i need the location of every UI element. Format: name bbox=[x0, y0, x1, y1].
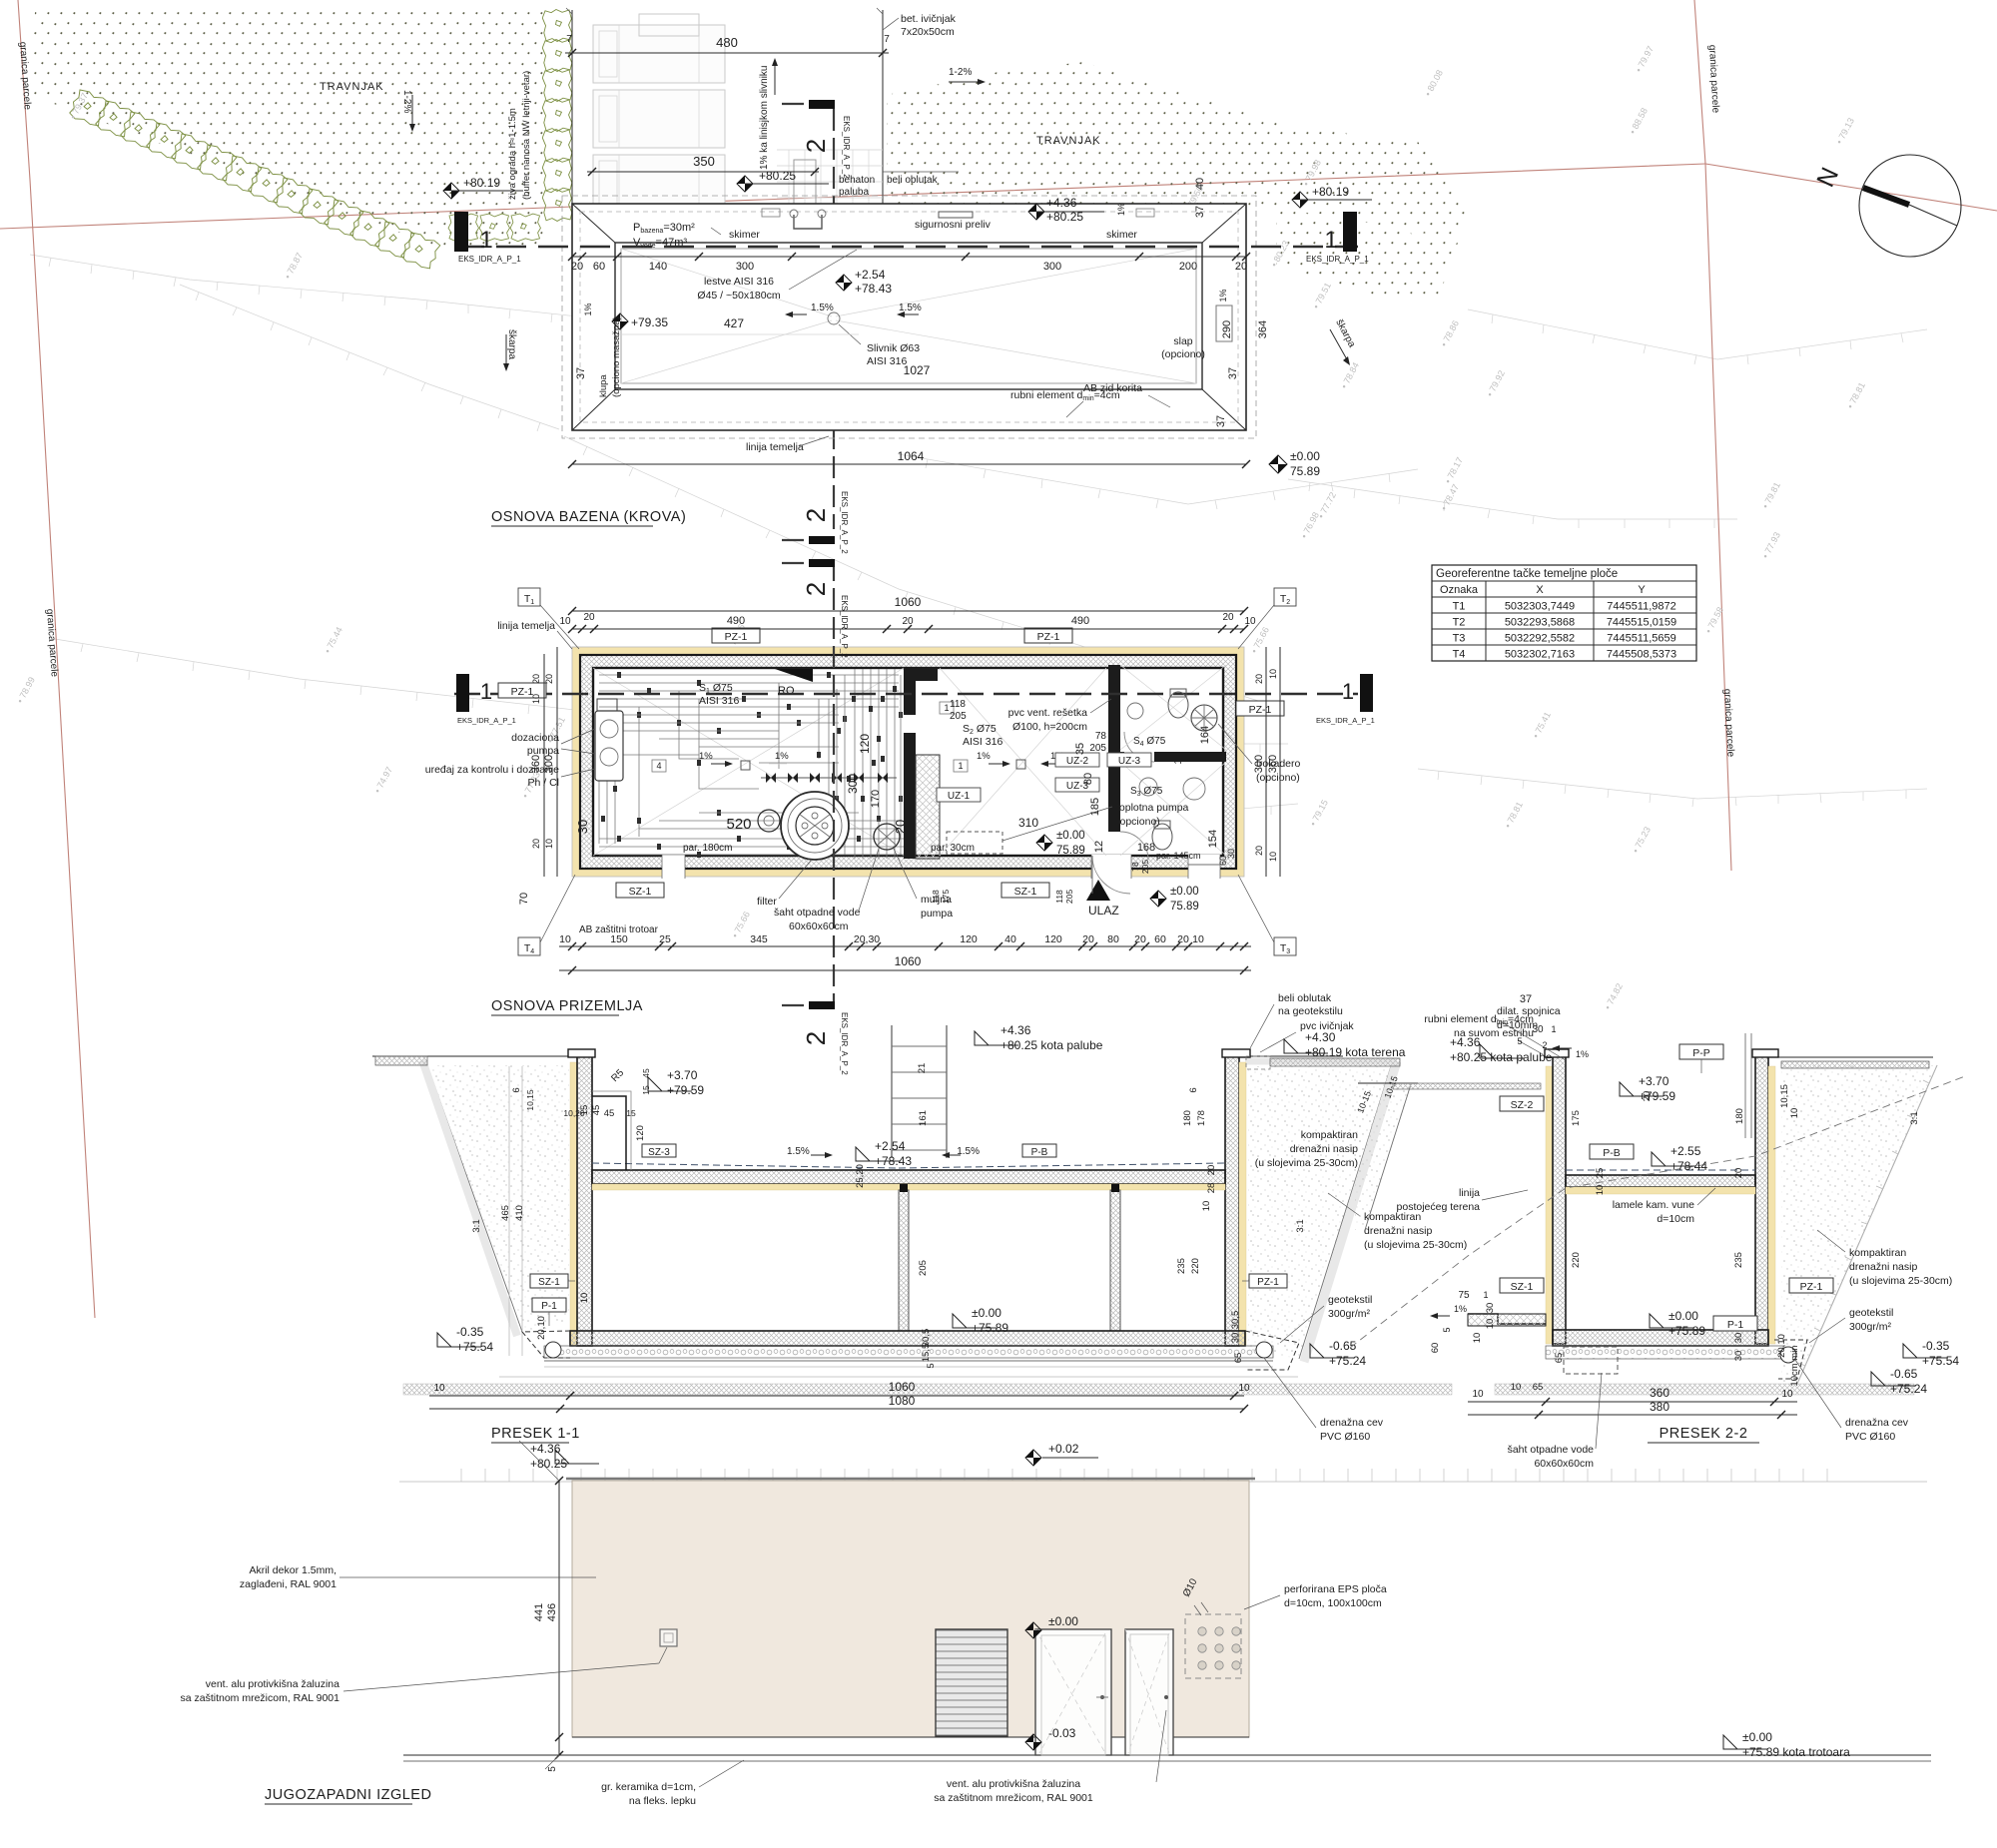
svg-text:345: 345 bbox=[750, 933, 768, 945]
svg-text:30: 30 bbox=[575, 820, 590, 834]
svg-text:S2 Ø75: S2 Ø75 bbox=[963, 723, 997, 736]
svg-text:1: 1 bbox=[480, 679, 492, 704]
svg-text:37: 37 bbox=[1215, 415, 1227, 427]
svg-text:+80.25: +80.25 bbox=[1046, 210, 1083, 224]
svg-text:30: 30 bbox=[1532, 1024, 1544, 1035]
svg-text:70: 70 bbox=[518, 893, 530, 905]
svg-text:75: 75 bbox=[1458, 1290, 1470, 1301]
svg-text:65: 65 bbox=[1533, 1382, 1544, 1393]
svg-text:154: 154 bbox=[1207, 830, 1219, 848]
svg-text:sa zaštitnom mrežicom, RAL 900: sa zaštitnom mrežicom, RAL 9001 bbox=[180, 1692, 339, 1704]
svg-text:1060: 1060 bbox=[895, 595, 922, 609]
svg-text:20: 20 bbox=[1254, 674, 1264, 684]
svg-text:360: 360 bbox=[1650, 1386, 1669, 1400]
svg-text:PRESEK 2-2: PRESEK 2-2 bbox=[1660, 1426, 1748, 1442]
svg-text:+75.89 kota trotoara: +75.89 kota trotoara bbox=[1742, 1745, 1850, 1759]
svg-text:PRESEK 1-1: PRESEK 1-1 bbox=[491, 1426, 580, 1442]
svg-text:PVC Ø160: PVC Ø160 bbox=[1320, 1431, 1370, 1443]
svg-text:1080: 1080 bbox=[889, 1394, 916, 1408]
svg-text:175: 175 bbox=[1571, 1110, 1582, 1126]
svg-text:(u slojevima 25-30cm): (u slojevima 25-30cm) bbox=[1364, 1239, 1467, 1251]
svg-text:• 75.66: • 75.66 bbox=[1249, 625, 1271, 655]
svg-text:1%: 1% bbox=[775, 751, 789, 762]
svg-text:20: 20 bbox=[583, 612, 595, 623]
svg-text:+75.89: +75.89 bbox=[972, 1321, 1008, 1335]
svg-text:300: 300 bbox=[1043, 261, 1061, 273]
svg-text:5032292,5582: 5032292,5582 bbox=[1505, 633, 1575, 645]
svg-text:10: 10 bbox=[1485, 1319, 1496, 1330]
svg-text:441: 441 bbox=[533, 1603, 545, 1621]
svg-text:360: 360 bbox=[530, 755, 542, 773]
svg-text:• 75.23: • 75.23 bbox=[1631, 825, 1653, 855]
svg-text:45: 45 bbox=[604, 1108, 615, 1119]
svg-text:TRAVNJAK: TRAVNJAK bbox=[1036, 135, 1101, 147]
svg-text:5: 5 bbox=[926, 1363, 937, 1368]
svg-text:PZ-1: PZ-1 bbox=[1037, 631, 1060, 643]
svg-text:7445508,5373: 7445508,5373 bbox=[1607, 649, 1676, 661]
svg-text:beli oblutak: beli oblutak bbox=[887, 175, 939, 186]
svg-text:SZ-1: SZ-1 bbox=[629, 886, 652, 898]
svg-text:10,15: 10,15 bbox=[1779, 1084, 1790, 1108]
svg-text:d=10cm, 100x100cm: d=10cm, 100x100cm bbox=[1284, 1597, 1382, 1609]
svg-text:21: 21 bbox=[917, 1063, 928, 1074]
svg-text:AB zid korita: AB zid korita bbox=[1083, 382, 1142, 394]
svg-text:180: 180 bbox=[1734, 1108, 1745, 1124]
svg-text:75.89: 75.89 bbox=[1170, 901, 1199, 913]
svg-text:• 80.08: • 80.08 bbox=[1423, 68, 1445, 98]
svg-text:7: 7 bbox=[884, 34, 890, 45]
svg-text:-0.03: -0.03 bbox=[1048, 1726, 1076, 1740]
svg-text:+80.25 kota palube: +80.25 kota palube bbox=[1000, 1038, 1103, 1052]
svg-text:2: 2 bbox=[801, 139, 831, 153]
svg-text:-0.35: -0.35 bbox=[1922, 1339, 1950, 1353]
svg-text:10: 10 bbox=[1268, 669, 1278, 679]
svg-text:pumpa: pumpa bbox=[921, 908, 953, 920]
svg-text:Slivnik Ø63: Slivnik Ø63 bbox=[867, 342, 920, 354]
svg-text:P-B: P-B bbox=[1603, 1147, 1621, 1159]
svg-text:drenažni nasip: drenažni nasip bbox=[1290, 1143, 1358, 1155]
svg-text:+80.19 kota terena: +80.19 kota terena bbox=[1305, 1045, 1406, 1059]
svg-text:OSNOVA BAZENA (KROVA): OSNOVA BAZENA (KROVA) bbox=[491, 509, 686, 525]
svg-text:par. 180cm: par. 180cm bbox=[683, 843, 732, 854]
svg-text:360: 360 bbox=[1267, 755, 1279, 773]
svg-text:• 78.17: • 78.17 bbox=[1443, 455, 1465, 485]
svg-text:X: X bbox=[1536, 584, 1544, 596]
svg-text:10: 10 bbox=[1268, 852, 1278, 862]
svg-text:20: 20 bbox=[531, 839, 541, 849]
svg-text:10: 10 bbox=[1472, 1333, 1483, 1344]
svg-text:5: 5 bbox=[1442, 1327, 1452, 1332]
svg-text:JUGOZAPADNI IZGLED: JUGOZAPADNI IZGLED bbox=[265, 1787, 431, 1803]
svg-text:65: 65 bbox=[1554, 1353, 1565, 1364]
svg-text:350: 350 bbox=[693, 154, 715, 169]
svg-text:PZ-1: PZ-1 bbox=[725, 631, 748, 643]
svg-text:480: 480 bbox=[716, 35, 738, 50]
svg-text:• 77.93: • 77.93 bbox=[1760, 530, 1782, 560]
svg-text:bet. ivičnjak: bet. ivičnjak bbox=[901, 13, 957, 25]
svg-text:AISI 316: AISI 316 bbox=[699, 695, 739, 707]
svg-text:60: 60 bbox=[1430, 1343, 1441, 1354]
svg-text:235: 235 bbox=[1733, 1252, 1744, 1268]
svg-text:25,20: 25,20 bbox=[855, 1164, 866, 1188]
svg-text:EKS_IDR_A_P_1: EKS_IDR_A_P_1 bbox=[1316, 716, 1375, 725]
svg-text:+80.19: +80.19 bbox=[1312, 185, 1349, 199]
svg-text:drenažni nasip: drenažni nasip bbox=[1364, 1225, 1432, 1237]
svg-text:75.89: 75.89 bbox=[1290, 464, 1320, 478]
svg-text:P-1: P-1 bbox=[1727, 1319, 1744, 1331]
svg-text:P-B: P-B bbox=[1031, 1147, 1048, 1158]
svg-text:granica parcele: granica parcele bbox=[44, 608, 60, 677]
svg-text:10: 10 bbox=[1244, 616, 1256, 627]
svg-text:5: 5 bbox=[1517, 1036, 1522, 1046]
svg-text:EKS_IDR_A_P_1: EKS_IDR_A_P_1 bbox=[1306, 255, 1369, 264]
svg-text:OSNOVA PRIZEMLJA: OSNOVA PRIZEMLJA bbox=[491, 998, 643, 1014]
svg-text:linija temelja: linija temelja bbox=[497, 620, 555, 632]
svg-text:60x60x60cm: 60x60x60cm bbox=[789, 921, 849, 932]
svg-text:• 74.97: • 74.97 bbox=[372, 765, 394, 795]
svg-text:30: 30 bbox=[1733, 1333, 1744, 1344]
svg-text:1%: 1% bbox=[977, 751, 991, 762]
svg-text:3:1: 3:1 bbox=[1295, 1219, 1306, 1232]
svg-text:T2: T2 bbox=[1453, 617, 1466, 629]
svg-text:1%: 1% bbox=[1576, 1049, 1589, 1059]
svg-text:37: 37 bbox=[1227, 367, 1239, 379]
svg-text:1%: 1% bbox=[1116, 203, 1126, 216]
svg-text:+75.54: +75.54 bbox=[456, 1340, 493, 1354]
svg-text:dilat. spojnica: dilat. spojnica bbox=[1497, 1005, 1561, 1017]
svg-text:-0.65: -0.65 bbox=[1890, 1367, 1918, 1381]
svg-text:P-1: P-1 bbox=[541, 1301, 557, 1312]
svg-text:• 79.97: • 79.97 bbox=[1634, 44, 1656, 74]
svg-text:1: 1 bbox=[1551, 1024, 1556, 1034]
svg-text:P-P: P-P bbox=[1692, 1047, 1710, 1059]
svg-text:granica parcele: granica parcele bbox=[1706, 45, 1721, 114]
svg-text:+2.55: +2.55 bbox=[1670, 1144, 1701, 1158]
svg-text:kompaktiran: kompaktiran bbox=[1301, 1129, 1358, 1141]
svg-text:20: 20 bbox=[893, 820, 908, 834]
svg-text:UZ-1: UZ-1 bbox=[948, 791, 971, 802]
svg-text:436: 436 bbox=[546, 1603, 558, 1621]
svg-text:škarpa: škarpa bbox=[1333, 317, 1357, 349]
svg-text:220: 220 bbox=[1190, 1258, 1201, 1274]
svg-text:na geotekstilu: na geotekstilu bbox=[1278, 1005, 1343, 1017]
svg-text:drenažna cev: drenažna cev bbox=[1845, 1417, 1909, 1429]
svg-text:+78.43: +78.43 bbox=[855, 282, 892, 296]
svg-text:28: 28 bbox=[1206, 1183, 1217, 1194]
svg-text:1-2%: 1-2% bbox=[401, 90, 412, 113]
svg-text:+79.35: +79.35 bbox=[631, 315, 668, 329]
svg-text:na fleks. lepku: na fleks. lepku bbox=[629, 1795, 696, 1807]
svg-text:• 79.81: • 79.81 bbox=[1760, 480, 1782, 510]
svg-text:EKS_IDR_A_P_2: EKS_IDR_A_P_2 bbox=[840, 595, 849, 658]
svg-text:(opciono): (opciono) bbox=[1116, 816, 1160, 828]
svg-text:465: 465 bbox=[500, 1205, 511, 1221]
svg-text:SZ-1: SZ-1 bbox=[538, 1277, 560, 1288]
svg-text:ULAZ: ULAZ bbox=[1088, 904, 1119, 918]
svg-text:EKS_IDR_A_P_2: EKS_IDR_A_P_2 bbox=[840, 1012, 849, 1075]
svg-text:10: 10 bbox=[1595, 1185, 1606, 1196]
svg-text:60: 60 bbox=[1154, 933, 1166, 945]
svg-text:+75.89: +75.89 bbox=[1668, 1324, 1705, 1338]
svg-text:3:1: 3:1 bbox=[471, 1219, 482, 1232]
svg-text:Oznaka: Oznaka bbox=[1440, 584, 1479, 596]
svg-text:šaht otpadne vode: šaht otpadne vode bbox=[1508, 1444, 1595, 1456]
svg-text:S3 Ø75: S3 Ø75 bbox=[1130, 786, 1163, 798]
svg-text:164: 164 bbox=[1199, 726, 1211, 744]
svg-text:1-2%: 1-2% bbox=[949, 67, 972, 78]
svg-text:380: 380 bbox=[1650, 1400, 1669, 1414]
svg-text:290: 290 bbox=[1221, 320, 1233, 338]
svg-text:5032302,7163: 5032302,7163 bbox=[1505, 649, 1575, 661]
svg-text:Y: Y bbox=[1638, 584, 1646, 596]
svg-text:10,15: 10,15 bbox=[525, 1089, 535, 1111]
svg-text:• 79.15: • 79.15 bbox=[1308, 798, 1330, 828]
svg-text:37: 37 bbox=[575, 367, 587, 379]
svg-text:EKS_IDR_A_P_1: EKS_IDR_A_P_1 bbox=[457, 716, 516, 725]
svg-text:+4.36: +4.36 bbox=[1046, 196, 1077, 210]
svg-text:škarpa: škarpa bbox=[506, 329, 517, 359]
svg-text:+78.44: +78.44 bbox=[1670, 1159, 1707, 1173]
svg-text:1% ka linisjkom slivniku: 1% ka linisjkom slivniku bbox=[759, 66, 770, 170]
svg-text:37: 37 bbox=[1520, 993, 1532, 1005]
svg-text:• 78.81: • 78.81 bbox=[1845, 380, 1867, 410]
svg-text:1%: 1% bbox=[1218, 289, 1228, 302]
svg-text:muljna: muljna bbox=[921, 894, 952, 906]
svg-text:±0.00: ±0.00 bbox=[1742, 1730, 1772, 1744]
svg-text:205: 205 bbox=[1064, 890, 1074, 904]
svg-text:T1: T1 bbox=[1453, 601, 1466, 613]
svg-text:S4 Ø75: S4 Ø75 bbox=[1133, 736, 1166, 748]
svg-text:1%: 1% bbox=[583, 303, 593, 315]
svg-text:+78.43: +78.43 bbox=[875, 1154, 912, 1168]
svg-text:(u slojevima 25-30cm): (u slojevima 25-30cm) bbox=[1849, 1275, 1952, 1287]
svg-text:±0.00: ±0.00 bbox=[972, 1306, 1001, 1320]
svg-text:+4.36: +4.36 bbox=[530, 1442, 561, 1456]
svg-text:N: N bbox=[1811, 164, 1844, 192]
svg-text:+2.54: +2.54 bbox=[855, 268, 886, 282]
svg-text:20: 20 bbox=[531, 674, 541, 684]
svg-text:toplotna pumpa: toplotna pumpa bbox=[1116, 802, 1189, 814]
svg-text:30,5: 30,5 bbox=[1230, 1311, 1241, 1330]
svg-text:1: 1 bbox=[958, 761, 963, 771]
svg-text:• 75.41: • 75.41 bbox=[1531, 710, 1553, 740]
svg-text:lestve AISI 316: lestve AISI 316 bbox=[704, 276, 774, 288]
svg-text:150: 150 bbox=[610, 933, 628, 945]
svg-text:linija: linija bbox=[1459, 1187, 1480, 1199]
svg-text:±0.00: ±0.00 bbox=[1668, 1309, 1698, 1323]
svg-text:60x60x60cm: 60x60x60cm bbox=[1534, 1458, 1594, 1470]
svg-text:• 78.84: • 78.84 bbox=[1339, 360, 1361, 390]
svg-text:15: 15 bbox=[626, 1108, 636, 1118]
svg-text:10: 10 bbox=[579, 1293, 590, 1304]
svg-text:40: 40 bbox=[1194, 178, 1206, 190]
svg-text:20: 20 bbox=[1642, 1091, 1653, 1102]
svg-text:(buffer nanosa NW letnji-vetar: (buffer nanosa NW letnji-vetar) bbox=[521, 71, 532, 200]
svg-text:78: 78 bbox=[1130, 862, 1140, 872]
svg-text:±0.00: ±0.00 bbox=[1290, 449, 1320, 463]
svg-text:• 78.99: • 78.99 bbox=[15, 675, 37, 705]
svg-text:+75.54: +75.54 bbox=[1922, 1354, 1959, 1368]
svg-text:40: 40 bbox=[1004, 933, 1016, 945]
svg-text:185: 185 bbox=[1089, 798, 1101, 816]
svg-text:20: 20 bbox=[544, 674, 554, 684]
svg-text:118: 118 bbox=[1054, 890, 1064, 904]
svg-text:170: 170 bbox=[870, 790, 882, 808]
svg-text:geotekstil: geotekstil bbox=[1849, 1307, 1893, 1319]
svg-text:10: 10 bbox=[559, 616, 571, 627]
svg-text:60: 60 bbox=[1218, 856, 1228, 866]
svg-text:+3.70: +3.70 bbox=[1639, 1074, 1669, 1088]
svg-text:2: 2 bbox=[801, 582, 831, 596]
svg-text:• 77.72: • 77.72 bbox=[1316, 490, 1338, 520]
svg-text:+80.19: +80.19 bbox=[463, 176, 500, 190]
svg-text:Akril dekor 1.5mm,: Akril dekor 1.5mm, bbox=[249, 1564, 336, 1576]
svg-text:6: 6 bbox=[511, 1087, 522, 1092]
svg-text:65: 65 bbox=[1233, 1353, 1244, 1364]
svg-text:SZ-1: SZ-1 bbox=[1014, 886, 1037, 898]
svg-text:10: 10 bbox=[1201, 1201, 1212, 1212]
svg-text:(u slojevima 25-30cm): (u slojevima 25-30cm) bbox=[1255, 1157, 1358, 1169]
svg-text:10,20: 10,20 bbox=[563, 1108, 585, 1118]
svg-text:1064: 1064 bbox=[898, 449, 925, 463]
svg-text:skimer: skimer bbox=[1106, 229, 1137, 241]
svg-text:7445515,0159: 7445515,0159 bbox=[1607, 617, 1676, 629]
svg-text:par. 30cm: par. 30cm bbox=[931, 843, 975, 854]
svg-text:10: 10 bbox=[1781, 1389, 1793, 1400]
svg-text:+79.59: +79.59 bbox=[667, 1083, 704, 1097]
svg-text:10: 10 bbox=[433, 1383, 445, 1394]
svg-text:10: 10 bbox=[1472, 1389, 1484, 1400]
svg-text:7445511,9872: 7445511,9872 bbox=[1607, 601, 1676, 613]
svg-text:pvc vent. rešetka: pvc vent. rešetka bbox=[1008, 707, 1088, 719]
svg-text:427: 427 bbox=[724, 316, 744, 330]
svg-text:skimer: skimer bbox=[729, 229, 760, 241]
svg-text:klupa: klupa bbox=[598, 374, 609, 397]
svg-text:• 78.47: • 78.47 bbox=[1439, 482, 1461, 512]
svg-text:10: 10 bbox=[559, 933, 571, 945]
svg-text:2: 2 bbox=[1542, 1040, 1547, 1050]
svg-text:78: 78 bbox=[1095, 731, 1107, 742]
svg-text:15,5: 15,5 bbox=[921, 1344, 932, 1363]
svg-text:300gr/m²: 300gr/m² bbox=[1849, 1321, 1892, 1333]
svg-text:T4: T4 bbox=[1453, 649, 1466, 661]
svg-text:37: 37 bbox=[1194, 206, 1206, 218]
svg-text:1.5%: 1.5% bbox=[811, 303, 834, 313]
svg-text:linija temelja: linija temelja bbox=[746, 441, 804, 453]
svg-text:205: 205 bbox=[950, 711, 967, 722]
svg-text:7x20x50cm: 7x20x50cm bbox=[901, 26, 955, 38]
svg-text:235: 235 bbox=[1176, 1258, 1187, 1274]
svg-text:+75.24: +75.24 bbox=[1890, 1382, 1927, 1396]
svg-text:20: 20 bbox=[1134, 933, 1146, 945]
svg-text:2: 2 bbox=[801, 1031, 831, 1045]
svg-text:220: 220 bbox=[1571, 1252, 1582, 1268]
svg-text:300: 300 bbox=[1253, 755, 1265, 773]
svg-text:Ø45 / ~50x180cm: Ø45 / ~50x180cm bbox=[697, 290, 780, 302]
svg-text:300: 300 bbox=[543, 755, 555, 773]
svg-text:205: 205 bbox=[1140, 860, 1150, 874]
svg-text:520: 520 bbox=[726, 816, 751, 833]
svg-text:PZ-1: PZ-1 bbox=[1257, 1277, 1279, 1288]
svg-text:±0.00: ±0.00 bbox=[1170, 886, 1199, 898]
svg-text:118: 118 bbox=[950, 699, 966, 710]
svg-text:10: 10 bbox=[1192, 933, 1204, 945]
svg-text:• 79.51: • 79.51 bbox=[1311, 281, 1333, 310]
svg-text:200: 200 bbox=[1179, 261, 1197, 273]
svg-text:20: 20 bbox=[1733, 1168, 1744, 1179]
svg-text:300gr/m²: 300gr/m² bbox=[1328, 1308, 1371, 1320]
svg-text:310: 310 bbox=[1018, 816, 1038, 830]
svg-text:4: 4 bbox=[656, 761, 661, 771]
svg-text:Georeferentne tačke temeljne p: Georeferentne tačke temeljne ploče bbox=[1436, 568, 1618, 580]
svg-text:SZ-3: SZ-3 bbox=[648, 1147, 670, 1158]
svg-text:-0.35: -0.35 bbox=[456, 1325, 484, 1339]
svg-text:perforirana EPS ploča: perforirana EPS ploča bbox=[1284, 1583, 1387, 1595]
svg-text:120: 120 bbox=[635, 1125, 646, 1141]
svg-text:30: 30 bbox=[1733, 1351, 1744, 1362]
svg-text:80: 80 bbox=[1082, 773, 1094, 785]
svg-text:EKS_IDR_A_P_1: EKS_IDR_A_P_1 bbox=[458, 255, 521, 264]
svg-text:1: 1 bbox=[479, 227, 492, 254]
svg-text:±0.00: ±0.00 bbox=[1056, 830, 1085, 842]
svg-text:granica parcele: granica parcele bbox=[1721, 689, 1736, 758]
svg-text:• 78.86: • 78.86 bbox=[1439, 318, 1461, 348]
svg-text:168: 168 bbox=[1137, 842, 1155, 854]
svg-text:(opciono masažna): (opciono masažna) bbox=[611, 316, 622, 397]
svg-text:10: 10 bbox=[544, 839, 554, 849]
svg-text:75.89: 75.89 bbox=[1056, 845, 1085, 857]
svg-text:10: 10 bbox=[1511, 1382, 1522, 1393]
svg-text:±0.00: ±0.00 bbox=[1048, 1614, 1078, 1628]
svg-text:30: 30 bbox=[1230, 1333, 1241, 1344]
svg-text:granica parcele: granica parcele bbox=[17, 41, 33, 110]
svg-text:+80.25 kota palube: +80.25 kota palube bbox=[1450, 1050, 1553, 1064]
svg-text:178: 178 bbox=[1196, 1110, 1207, 1126]
svg-text:6: 6 bbox=[1188, 1087, 1199, 1092]
svg-text:1: 1 bbox=[1483, 1290, 1488, 1300]
svg-text:5032303,7449: 5032303,7449 bbox=[1505, 601, 1575, 613]
svg-text:UZ-2: UZ-2 bbox=[1066, 756, 1089, 767]
svg-text:PVC Ø160: PVC Ø160 bbox=[1845, 1431, 1895, 1443]
svg-text:SZ-1: SZ-1 bbox=[1511, 1281, 1534, 1293]
svg-text:15: 15 bbox=[641, 1085, 651, 1095]
svg-text:• 79.13: • 79.13 bbox=[1834, 116, 1856, 146]
svg-text:+4.36: +4.36 bbox=[1450, 1035, 1481, 1049]
svg-text:gr. keramika d=1cm,: gr. keramika d=1cm, bbox=[601, 1781, 696, 1793]
svg-text:20,10: 20,10 bbox=[1776, 1334, 1787, 1358]
svg-text:postojećeg terena: postojećeg terena bbox=[1397, 1201, 1481, 1213]
svg-text:180: 180 bbox=[1182, 1110, 1193, 1126]
svg-text:60: 60 bbox=[593, 261, 605, 273]
svg-text:30: 30 bbox=[1485, 1303, 1496, 1314]
svg-text:35: 35 bbox=[1074, 743, 1086, 755]
svg-text:10: 10 bbox=[1238, 1383, 1250, 1394]
svg-text:UZ-3: UZ-3 bbox=[1118, 756, 1141, 767]
svg-text:• 74.82: • 74.82 bbox=[1603, 981, 1625, 1011]
svg-text:+0.02: +0.02 bbox=[1048, 1442, 1079, 1456]
svg-text:• 78.81: • 78.81 bbox=[1503, 800, 1525, 830]
svg-text:45: 45 bbox=[641, 1068, 651, 1078]
svg-text:sigurnosni preliv: sigurnosni preliv bbox=[915, 219, 992, 231]
svg-text:10: 10 bbox=[531, 694, 541, 704]
svg-text:20: 20 bbox=[1235, 261, 1247, 273]
svg-text:R5: R5 bbox=[609, 1067, 626, 1084]
svg-text:490: 490 bbox=[727, 615, 745, 627]
svg-text:Ph / Cl: Ph / Cl bbox=[527, 777, 559, 789]
svg-text:šaht otpadne vode: šaht otpadne vode bbox=[774, 907, 861, 919]
svg-text:1060: 1060 bbox=[895, 954, 922, 968]
svg-text:1.5%: 1.5% bbox=[899, 303, 922, 313]
